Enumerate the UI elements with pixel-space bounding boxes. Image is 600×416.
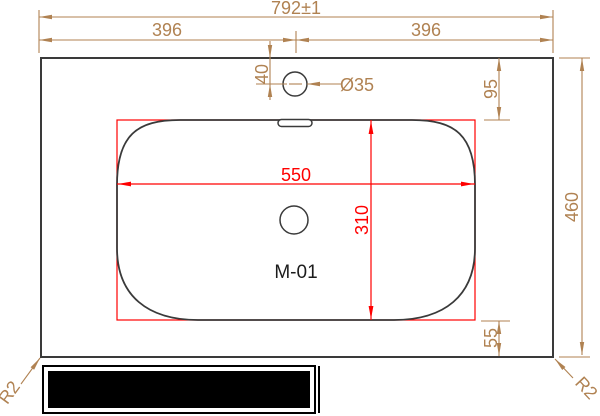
dim-basin-to-front: 55 bbox=[481, 328, 501, 348]
dimension-arrows bbox=[31, 15, 585, 370]
dim-basin-depth: 310 bbox=[352, 205, 372, 235]
drain-hole bbox=[280, 206, 308, 234]
dim-corner-radius-left: R2 bbox=[0, 377, 24, 407]
vanity-top-drawing: 792±1 396 396 40 Ø35 95 460 55 550 310 R… bbox=[0, 0, 600, 416]
dim-corner-radius-right: R2 bbox=[571, 373, 600, 403]
overflow-slot bbox=[278, 120, 312, 127]
redacted-logo bbox=[43, 366, 319, 413]
model-label: M-01 bbox=[274, 262, 317, 283]
dim-right-half: 396 bbox=[411, 20, 441, 40]
dim-left-half: 396 bbox=[152, 20, 182, 40]
dim-faucet-setback: 40 bbox=[252, 64, 272, 84]
dim-basin-width: 550 bbox=[281, 165, 311, 185]
dim-faucet-hole-diameter: Ø35 bbox=[340, 75, 374, 95]
technical-drawing-page: 792±1 396 396 40 Ø35 95 460 55 550 310 R… bbox=[0, 0, 600, 416]
dim-top-to-basin: 95 bbox=[481, 79, 501, 99]
dim-total-depth: 460 bbox=[562, 192, 582, 222]
dimension-lines bbox=[21, 10, 590, 384]
dim-total-width: 792±1 bbox=[271, 0, 321, 18]
